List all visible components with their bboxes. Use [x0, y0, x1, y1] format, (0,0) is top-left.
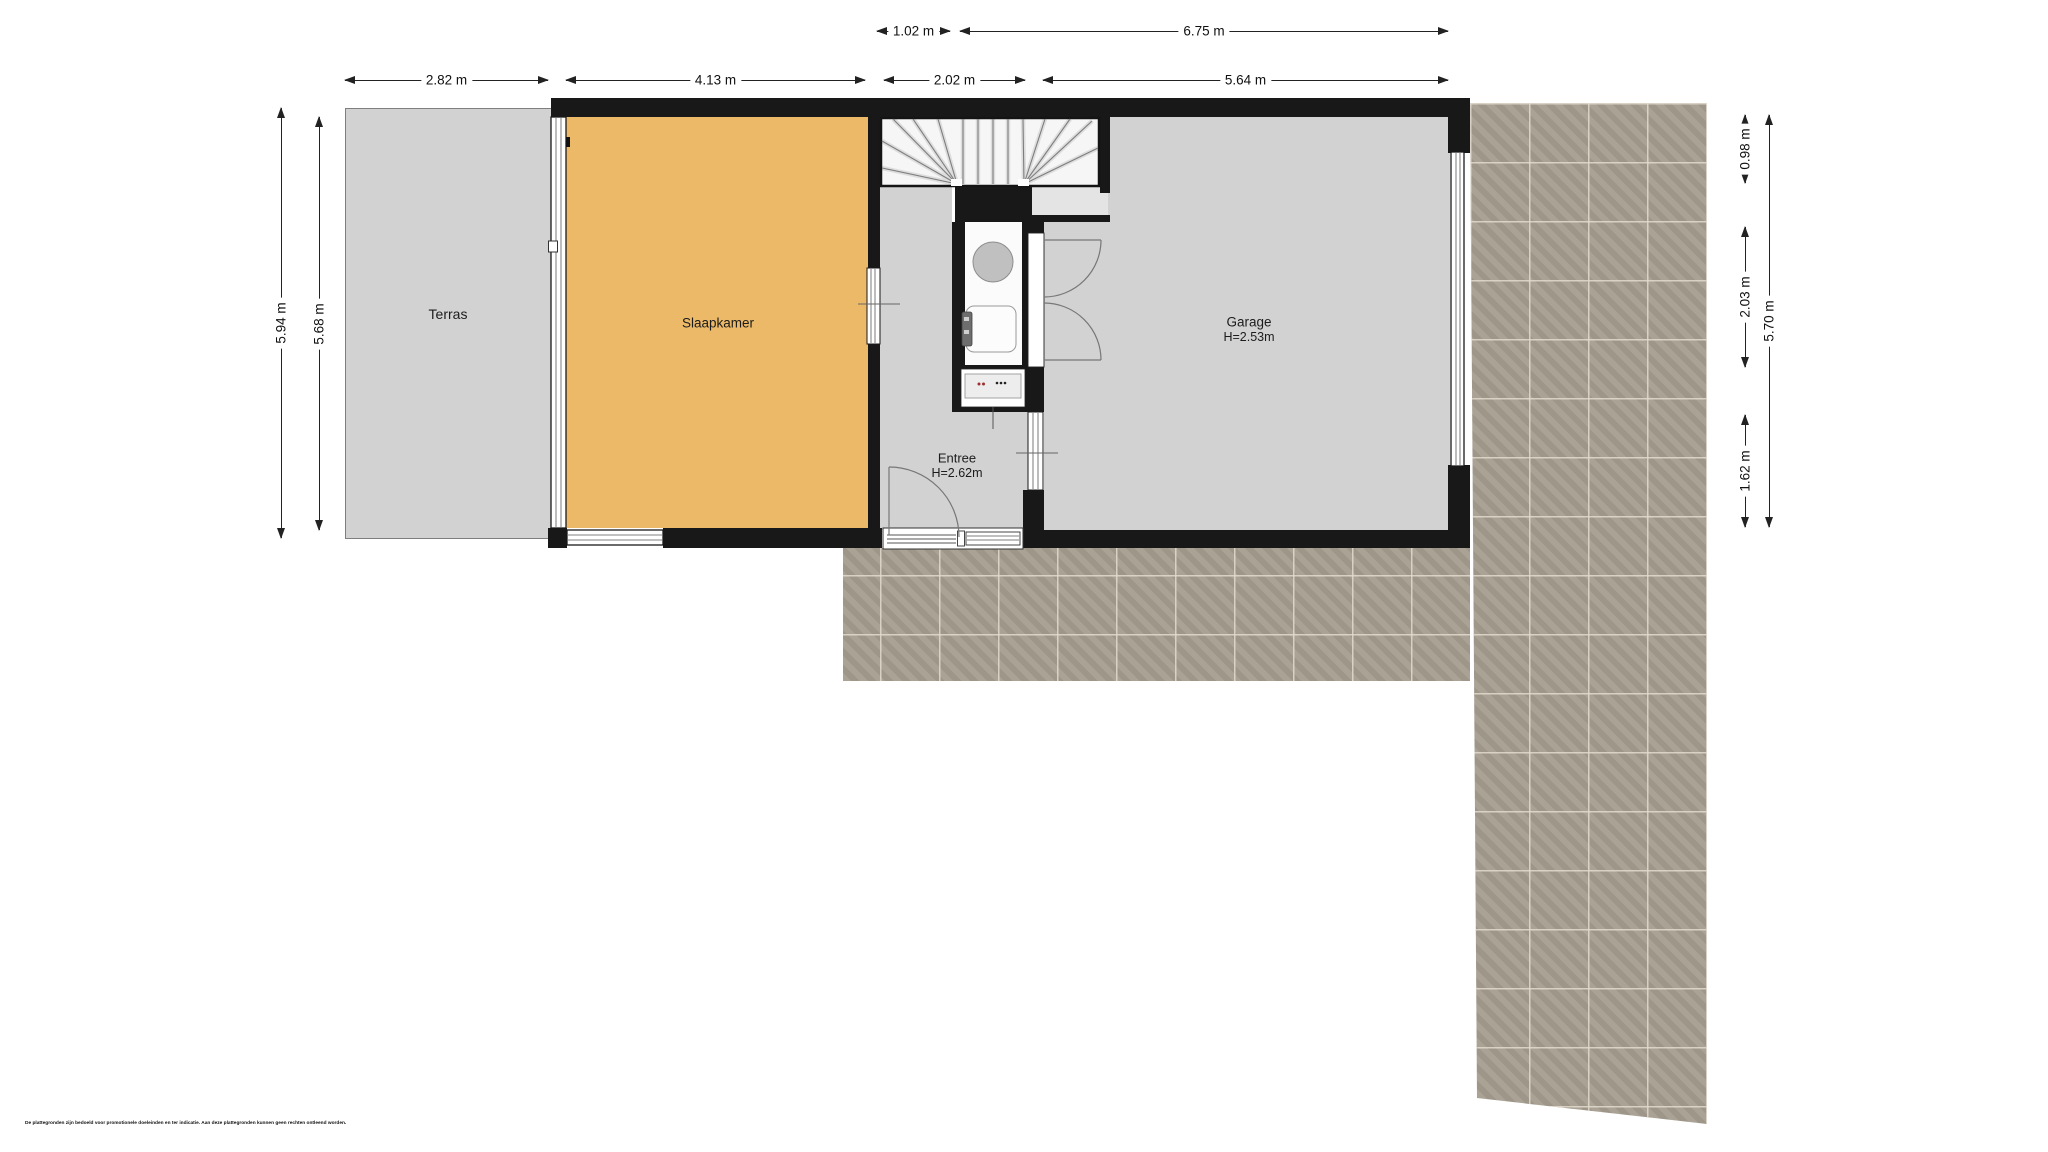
wall-corner-top-right — [1448, 98, 1470, 153]
wall-bedroom-bottom — [663, 528, 882, 548]
entree-corridor-floor — [880, 187, 952, 412]
slaapkamer-label: Slaapkamer — [682, 316, 754, 331]
disclaimer-text: De plattegronden zijn bedoeld voor promo… — [25, 1121, 365, 1126]
wall-partition-top — [1028, 222, 1044, 234]
entree-label: Entree — [938, 451, 976, 466]
toilet-floor — [965, 222, 1022, 365]
wall-top — [551, 98, 1470, 117]
wall-stairwell-right — [1100, 117, 1110, 193]
window-slaapkamer-bottom — [567, 530, 663, 545]
floorplan-canvas: Terras Slaapkamer Entree H=2.62m Garage … — [0, 0, 2048, 1152]
stair-notch-left — [951, 179, 962, 186]
paving-right-strip — [1470, 103, 1707, 1124]
terras-label: Terras — [429, 306, 468, 322]
wall-landing-edge — [1032, 215, 1110, 222]
wall-partition-low — [1023, 490, 1044, 548]
wall-toilet-right — [1022, 222, 1030, 365]
garage-height-label: H=2.53m — [1223, 330, 1274, 344]
wall-toilet-bottom-band — [952, 365, 1042, 412]
entree-height-label: H=2.62m — [931, 466, 982, 480]
window-garage-right — [1451, 152, 1464, 466]
wall-bottom-garage — [1027, 530, 1470, 548]
wall-corner-bottom-left — [548, 528, 567, 548]
paving-bottom-apron — [843, 548, 1470, 681]
wall-bedroom-right-upper — [868, 117, 880, 268]
stair-landing — [1032, 187, 1108, 215]
stair-notch-right — [1018, 179, 1029, 186]
front-door-sidelight — [966, 532, 1020, 545]
wall-bedroom-right-lower — [868, 344, 880, 528]
wall-under-stairs — [955, 187, 1032, 222]
terras-floor — [345, 108, 552, 539]
garage-label: Garage — [1226, 315, 1271, 330]
